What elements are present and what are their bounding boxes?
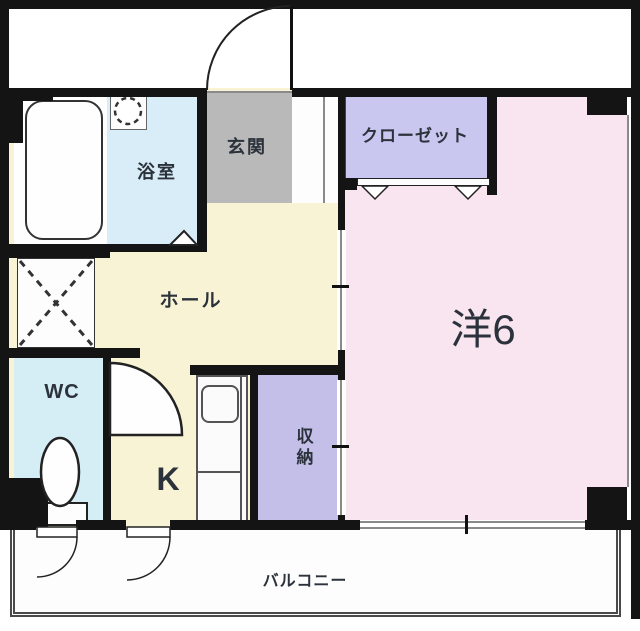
- label-hall: ホール: [159, 292, 222, 311]
- label-western-room: 洋6: [450, 309, 515, 351]
- balcony-door-leaf-right: [127, 527, 170, 537]
- closet-door-mark-right: [455, 186, 481, 199]
- balcony-door-arc-right: [127, 537, 170, 580]
- washbasin-icon: [115, 98, 141, 124]
- entrance-door-arc: [207, 6, 291, 90]
- label-kitchen: K: [156, 463, 179, 495]
- plan-details: [0, 0, 640, 631]
- bath-door-mark: [170, 231, 197, 245]
- label-balcony: バルコニー: [263, 574, 348, 590]
- closet-door-mark-left: [362, 186, 388, 199]
- toilet-bowl: [41, 438, 79, 506]
- label-storage: 収納: [295, 427, 312, 469]
- label-closet: クローゼット: [361, 128, 469, 145]
- balcony-door-arc-left: [37, 537, 77, 577]
- label-entrance: 玄関: [227, 138, 267, 156]
- wc-door-swing: [110, 363, 182, 435]
- label-bathroom: 浴室: [137, 163, 177, 181]
- label-wc: WC: [44, 382, 79, 402]
- balcony-door-leaf-left: [37, 527, 77, 537]
- floorplan: 浴室 玄関 クローゼット ホール WC K 収納 洋6 バルコニー: [0, 0, 640, 631]
